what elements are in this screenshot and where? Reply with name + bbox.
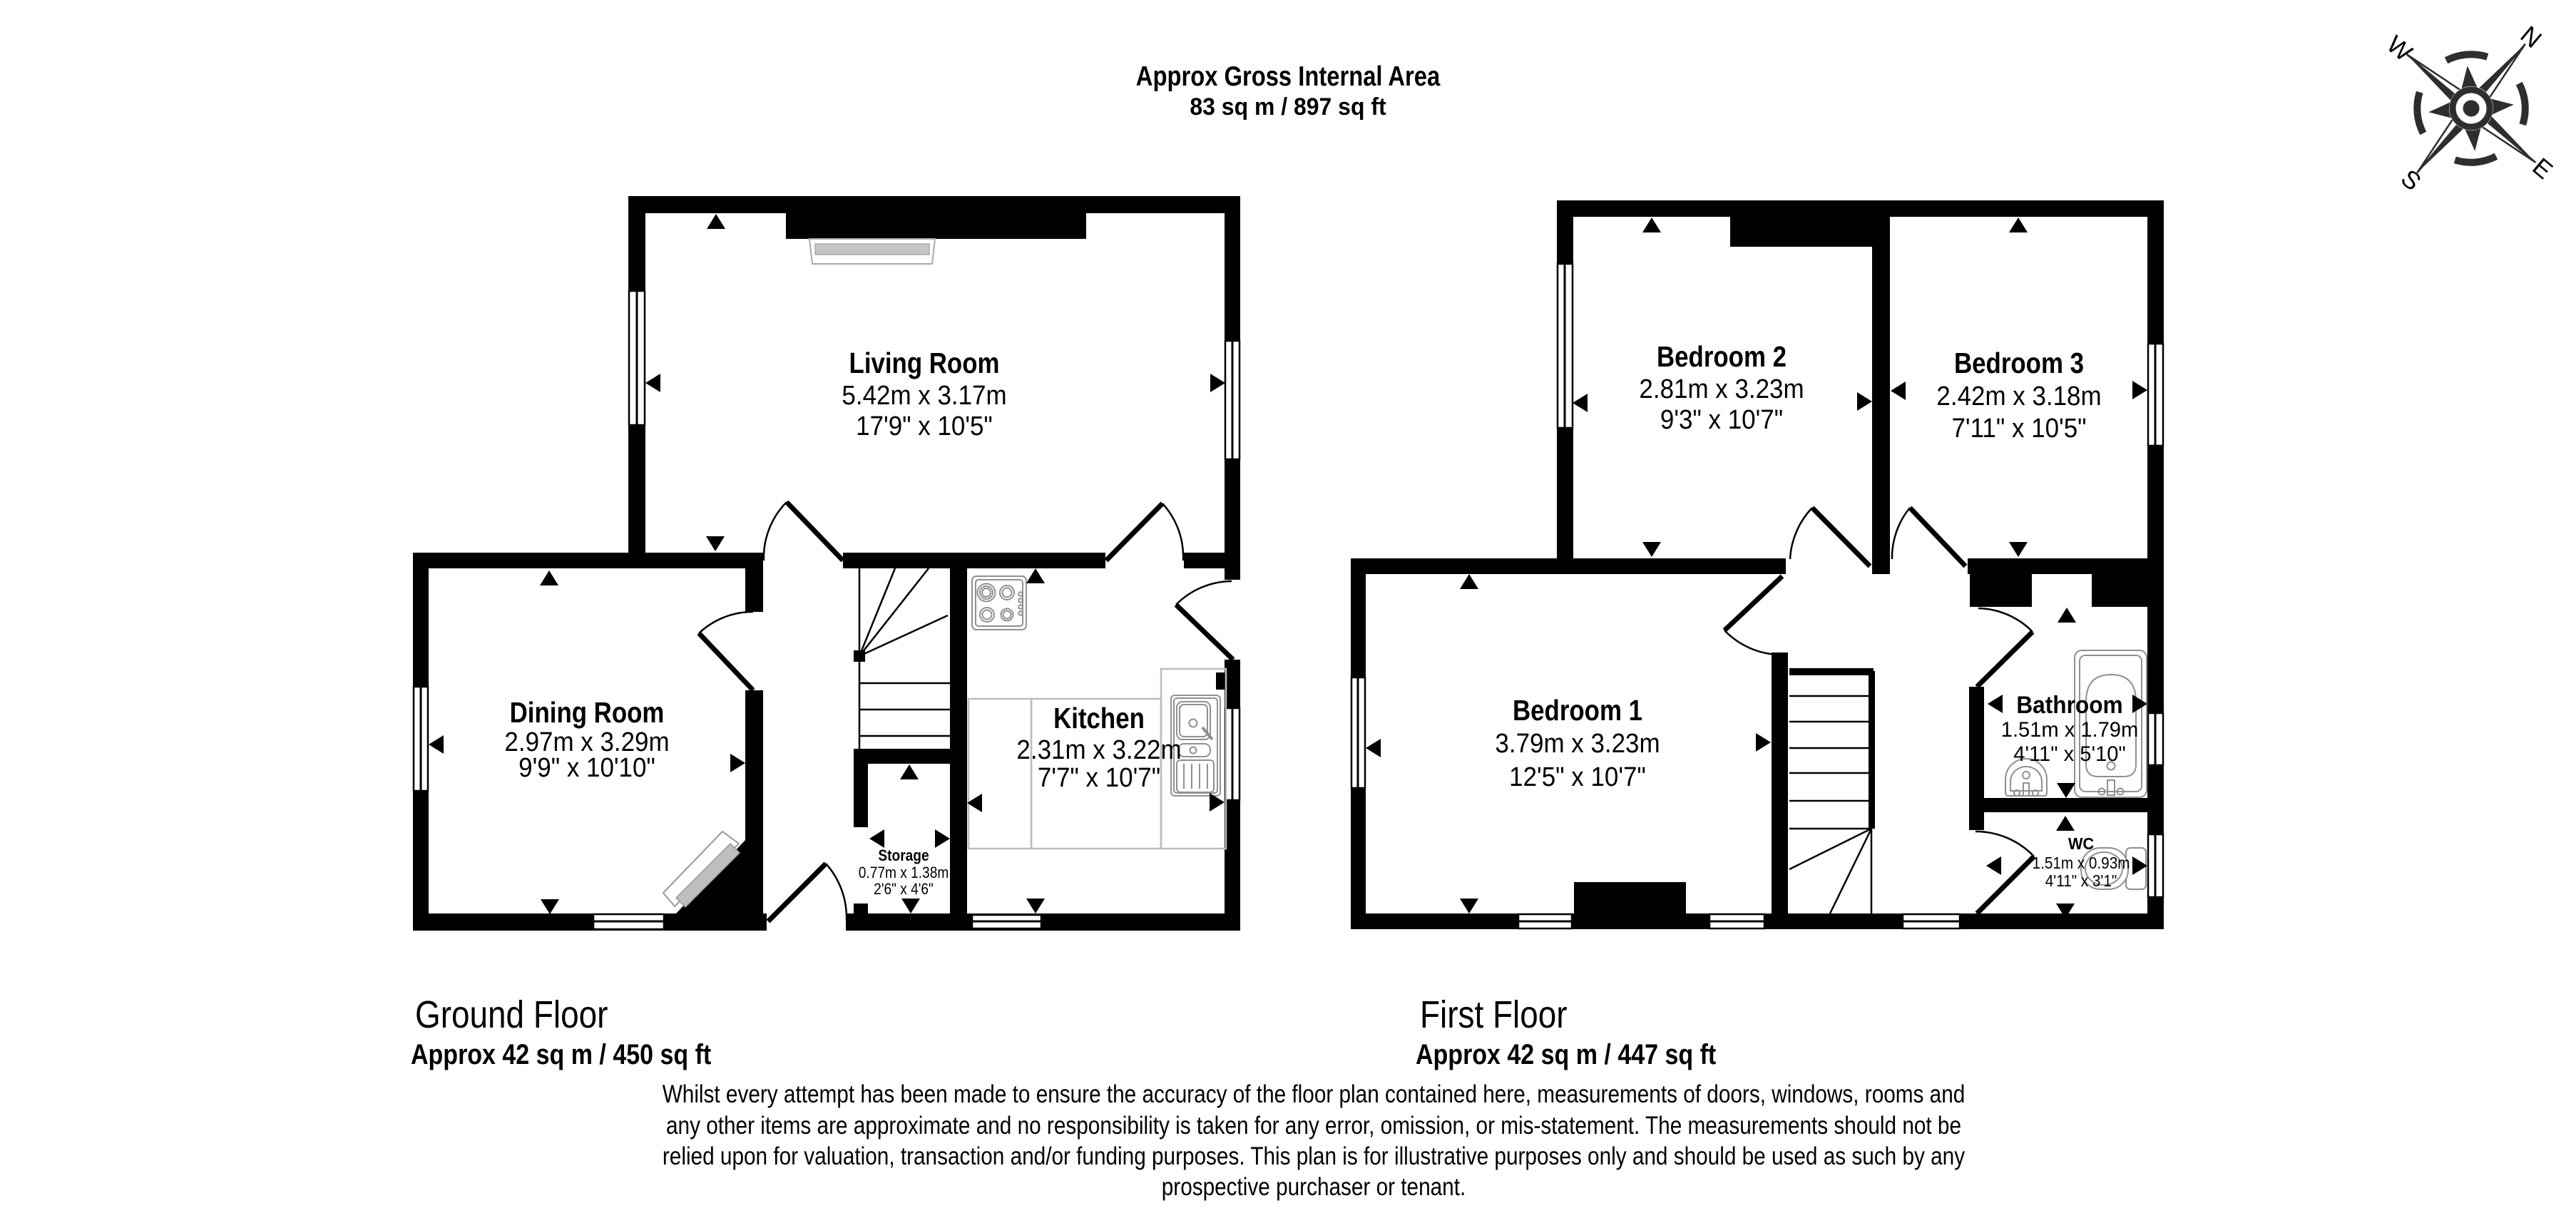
svg-text:any other items are approximat: any other items are approximate and no r… bbox=[666, 1112, 1961, 1140]
svg-text:1.51m x 1.79m: 1.51m x 1.79m bbox=[2001, 718, 2138, 742]
svg-text:Approx Gross Internal Area: Approx Gross Internal Area bbox=[1136, 60, 1441, 91]
svg-text:WC: WC bbox=[2068, 834, 2094, 853]
svg-text:Kitchen: Kitchen bbox=[1053, 702, 1145, 735]
svg-text:9'9" x 10'10": 9'9" x 10'10" bbox=[518, 752, 655, 783]
svg-text:First Floor: First Floor bbox=[1420, 993, 1568, 1036]
svg-text:4'11" x 5'10": 4'11" x 5'10" bbox=[2013, 742, 2125, 766]
svg-text:7'7" x 10'7": 7'7" x 10'7" bbox=[1038, 762, 1160, 793]
svg-text:Bedroom 3: Bedroom 3 bbox=[1954, 347, 2084, 379]
svg-text:Bedroom 1: Bedroom 1 bbox=[1513, 695, 1642, 727]
svg-text:5.42m x 3.17m: 5.42m x 3.17m bbox=[842, 380, 1006, 411]
svg-text:83 sq m / 897 sq ft: 83 sq m / 897 sq ft bbox=[1190, 93, 1386, 120]
svg-text:Whilst every attempt has been: Whilst every attempt has been made to en… bbox=[663, 1080, 1966, 1108]
svg-text:Ground Floor: Ground Floor bbox=[415, 993, 608, 1036]
svg-text:9'3" x 10'7": 9'3" x 10'7" bbox=[1660, 404, 1783, 435]
svg-text:Approx 42 sq m / 447 sq ft: Approx 42 sq m / 447 sq ft bbox=[1416, 1038, 1716, 1070]
svg-text:7'11" x 10'5": 7'11" x 10'5" bbox=[1951, 413, 2086, 444]
svg-text:17'9" x 10'5": 17'9" x 10'5" bbox=[856, 411, 993, 441]
svg-text:Dining Room: Dining Room bbox=[510, 697, 665, 729]
svg-text:2.42m x 3.18m: 2.42m x 3.18m bbox=[1936, 381, 2101, 411]
svg-text:Living Room: Living Room bbox=[849, 347, 1000, 379]
svg-text:3.79m x 3.23m: 3.79m x 3.23m bbox=[1495, 728, 1660, 759]
svg-text:2'6" x 4'6": 2'6" x 4'6" bbox=[874, 881, 934, 899]
svg-text:2.81m x 3.23m: 2.81m x 3.23m bbox=[1639, 374, 1804, 404]
svg-text:prospective purchaser or tenan: prospective purchaser or tenant. bbox=[1162, 1173, 1466, 1201]
svg-text:2.31m x 3.22m: 2.31m x 3.22m bbox=[1016, 735, 1181, 765]
svg-text:Bedroom 2: Bedroom 2 bbox=[1657, 341, 1787, 373]
svg-text:4'11" x 3'1": 4'11" x 3'1" bbox=[2045, 871, 2117, 890]
svg-text:Bathroom: Bathroom bbox=[2016, 691, 2122, 718]
svg-text:0.77m x 1.38m: 0.77m x 1.38m bbox=[859, 864, 949, 882]
svg-text:1.51m x 0.93m: 1.51m x 0.93m bbox=[2033, 854, 2130, 872]
svg-text:Storage: Storage bbox=[878, 847, 929, 865]
svg-text:relied upon for valuation, tra: relied upon for valuation, transaction a… bbox=[663, 1142, 1966, 1170]
svg-text:Approx 42 sq m / 450 sq ft: Approx 42 sq m / 450 sq ft bbox=[411, 1038, 711, 1070]
svg-text:12'5" x 10'7": 12'5" x 10'7" bbox=[1509, 762, 1646, 792]
